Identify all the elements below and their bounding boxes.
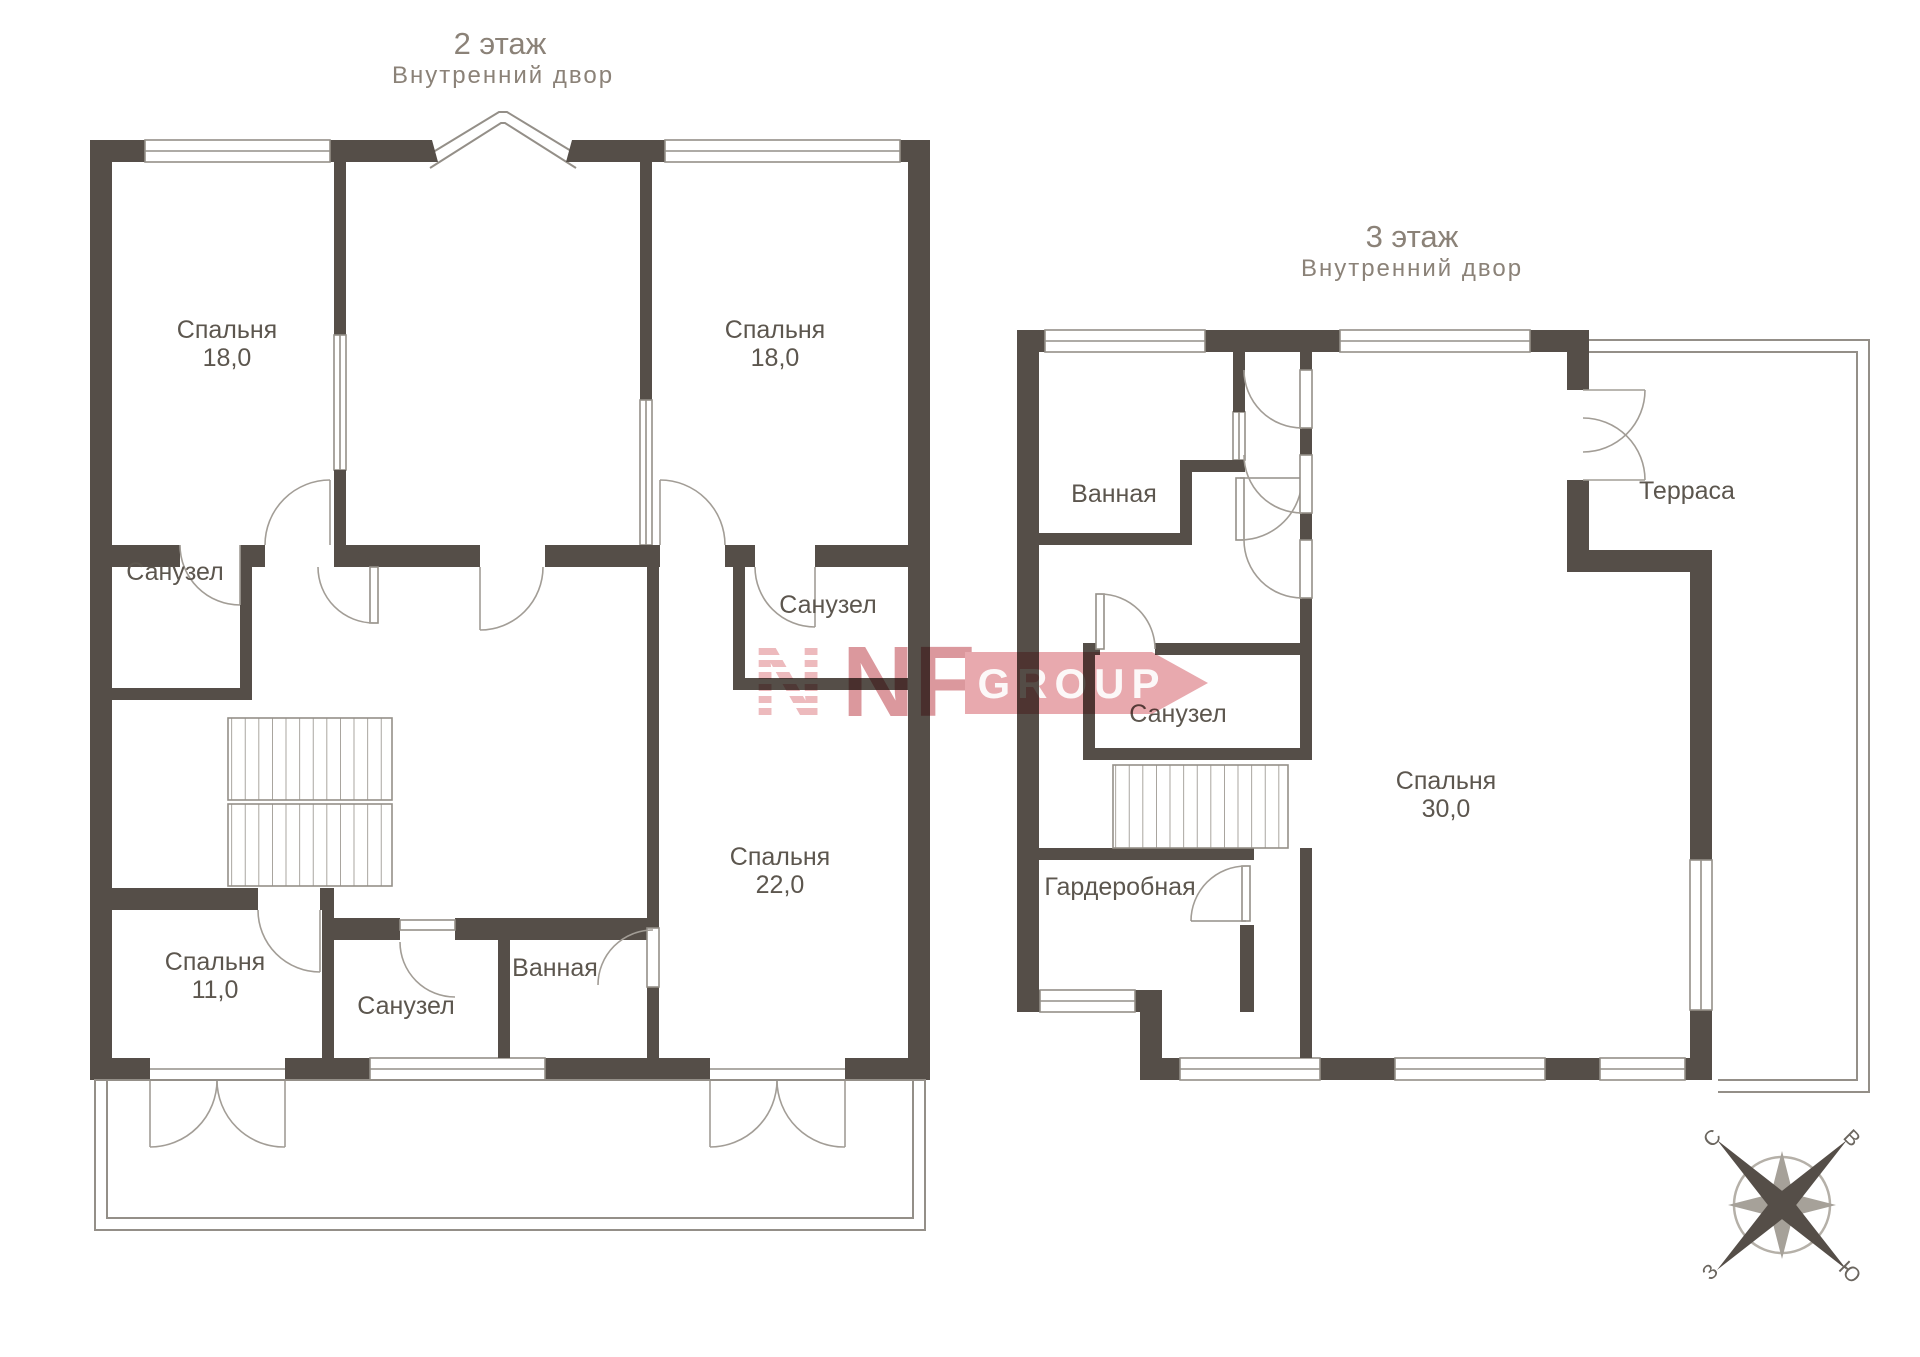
watermark-suffix-group: GROUP	[977, 660, 1166, 707]
room-label-terrace: Терраса	[1639, 477, 1735, 505]
floor3-terrace-boundary	[1589, 340, 1869, 1092]
watermark-emblem-n: N	[752, 626, 824, 738]
compass-west-label: З	[1698, 1260, 1723, 1285]
room-label-bathroom-f2: Ванная	[512, 954, 598, 982]
compass-dark-star	[1652, 1075, 1912, 1335]
floor3-title: 3 этаж	[1366, 219, 1459, 254]
room-area-bedroom-bl: 11,0	[192, 976, 239, 1004]
room-label-bedroom-f3: Спальня	[1396, 767, 1496, 795]
room-label-bath-bottom: Санузел	[357, 992, 454, 1020]
room-area-bedroom-tl: 18,0	[203, 344, 252, 372]
compass-east-label: В	[1839, 1125, 1865, 1151]
room-label-bathroom-f3: Ванная	[1071, 480, 1157, 508]
room-area-bedroom-tr: 18,0	[751, 344, 800, 372]
room-label-bedroom-tr: Спальня	[725, 316, 825, 344]
room-area-bedroom-f3: 30,0	[1422, 795, 1471, 823]
watermark-brand-nf: NF	[842, 626, 975, 738]
compass-rose: С В З Ю	[1652, 1075, 1912, 1335]
room-label-bedroom-tl: Спальня	[177, 316, 277, 344]
room-label-wardrobe: Гардеробная	[1044, 873, 1195, 901]
room-area-bedroom-big: 22,0	[756, 871, 805, 899]
floor2-balcony	[95, 1080, 925, 1230]
floor3-subtitle: Внутренний двор	[1301, 255, 1523, 282]
floorplan-canvas: 2 этаж Внутренний двор 3 этаж Внутренний…	[0, 0, 1920, 1357]
compass-north-label: С	[1699, 1125, 1726, 1152]
floor2-stairs	[228, 718, 392, 886]
floor3-stairs	[1113, 765, 1288, 848]
floor2-bay-window	[415, 112, 590, 168]
room-label-bath-right: Санузел	[779, 591, 876, 619]
titles: 2 этаж Внутренний двор 3 этаж Внутренний…	[392, 26, 1523, 282]
floor2-courtyard-walls	[334, 162, 652, 567]
floorplan-svg: 2 этаж Внутренний двор 3 этаж Внутренний…	[0, 0, 1920, 1357]
floor2-subtitle: Внутренний двор	[392, 62, 614, 89]
room-label-bedroom-big: Спальня	[730, 843, 830, 871]
room-label-bedroom-bl: Спальня	[165, 948, 265, 976]
floor2-title: 2 этаж	[454, 26, 547, 61]
room-label-bath-left: Санузел	[126, 558, 223, 586]
